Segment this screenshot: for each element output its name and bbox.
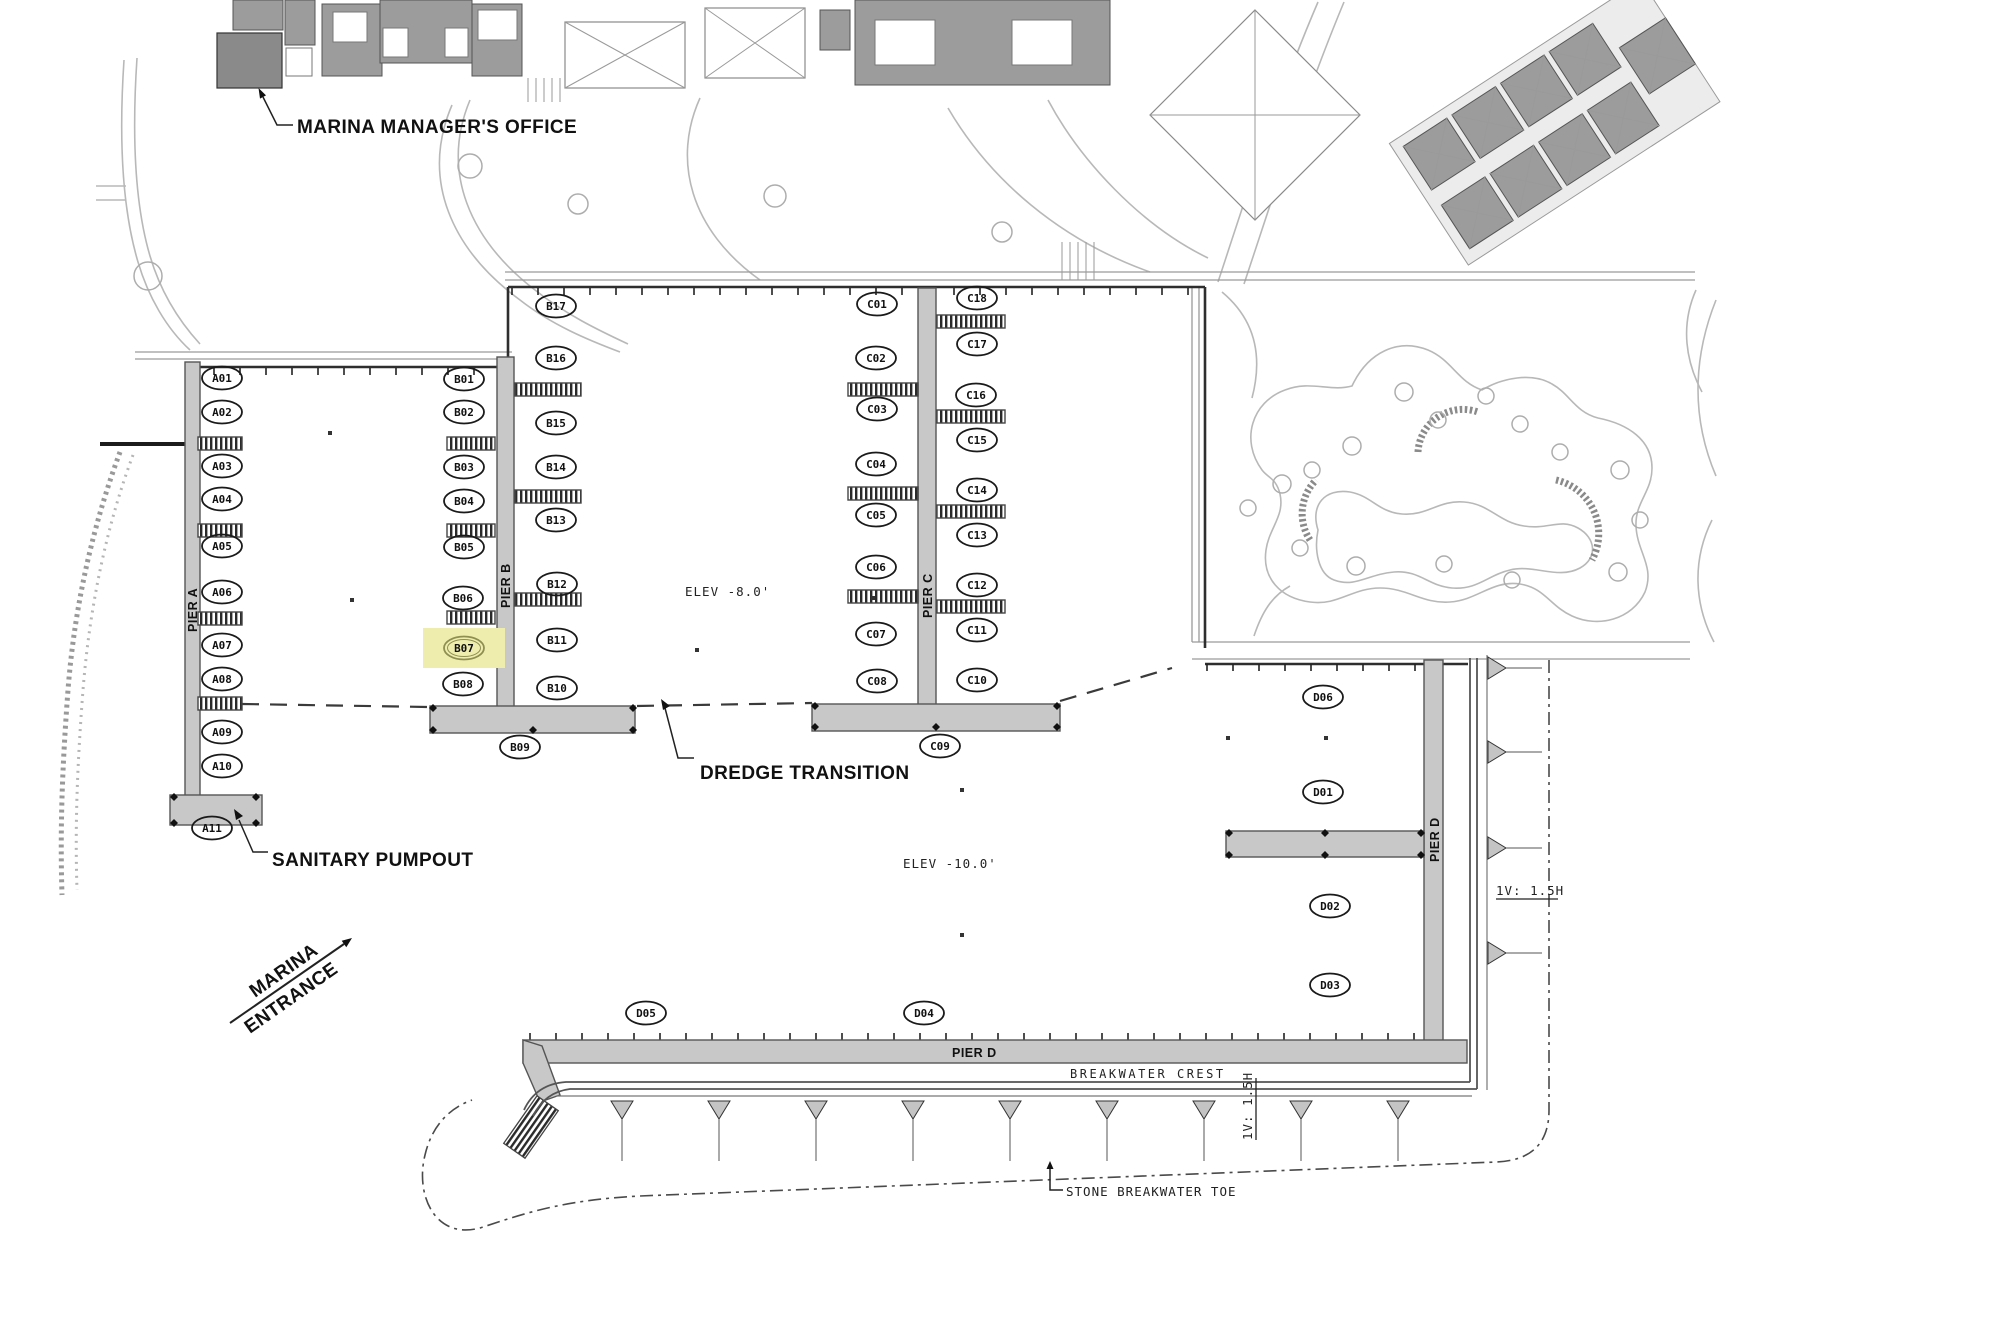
- svg-text:C10: C10: [967, 674, 987, 687]
- svg-text:B16: B16: [546, 352, 566, 365]
- svg-text:B02: B02: [454, 406, 474, 419]
- elev-lower-basin-label: ELEV -10.0': [903, 856, 997, 871]
- slip-D03[interactable]: D03: [1310, 974, 1350, 997]
- slip-B14[interactable]: B14: [536, 456, 576, 479]
- svg-text:D01: D01: [1313, 786, 1333, 799]
- stairs-icon: [1062, 242, 1094, 280]
- slip-C14[interactable]: C14: [957, 479, 997, 502]
- slip-B10[interactable]: B10: [537, 677, 577, 700]
- svg-text:C15: C15: [967, 434, 987, 447]
- arrowhead-icon: [1047, 1161, 1054, 1169]
- svg-text:A07: A07: [212, 639, 232, 652]
- slip-C06[interactable]: C06: [856, 556, 896, 579]
- slip-B08[interactable]: B08: [443, 673, 483, 696]
- slip-B11[interactable]: B11: [537, 629, 577, 652]
- slip-A10[interactable]: A10: [202, 755, 242, 778]
- stone-revetment: [61, 452, 133, 895]
- slip-C16[interactable]: C16: [956, 384, 996, 407]
- svg-text:C17: C17: [967, 338, 987, 351]
- marina-managers-office-building: [217, 33, 282, 88]
- dredge-transition-label: DREDGE TRANSITION: [700, 763, 909, 784]
- svg-text:1V: 1.5H: 1V: 1.5H: [1240, 1072, 1255, 1140]
- pool-landscape: [1240, 346, 1652, 622]
- resort-buildings-center: [705, 0, 1360, 280]
- slip-C18[interactable]: C18: [957, 287, 997, 310]
- pier-a-label: PIER A: [186, 588, 200, 632]
- svg-text:D03: D03: [1320, 979, 1340, 992]
- slip-B01[interactable]: B01: [444, 368, 484, 391]
- svg-text:A09: A09: [212, 726, 232, 739]
- slip-C07[interactable]: C07: [856, 623, 896, 646]
- slip-B04[interactable]: B04: [444, 490, 484, 513]
- svg-text:C02: C02: [866, 352, 886, 365]
- resort-buildings-northeast: [1389, 0, 1720, 265]
- slip-A04[interactable]: A04: [202, 488, 242, 511]
- slip-C01[interactable]: C01: [857, 293, 897, 316]
- svg-text:A02: A02: [212, 406, 232, 419]
- svg-text:C12: C12: [967, 579, 987, 592]
- marina-managers-office-label: MARINA MANAGER'S OFFICE: [297, 117, 577, 138]
- svg-text:B12: B12: [547, 578, 567, 591]
- slip-B17[interactable]: B17: [536, 295, 576, 318]
- pier-c-walkway: [918, 288, 936, 708]
- slip-D01[interactable]: D01: [1303, 781, 1343, 804]
- breakwater-crest-label: BREAKWATER CREST: [1070, 1067, 1226, 1081]
- slip-D05[interactable]: D05: [626, 1002, 666, 1025]
- slip-A03[interactable]: A03: [202, 455, 242, 478]
- svg-text:B14: B14: [546, 461, 566, 474]
- slip-C08[interactable]: C08: [857, 670, 897, 693]
- slip-D02[interactable]: D02: [1310, 895, 1350, 918]
- slip-C13[interactable]: C13: [957, 524, 997, 547]
- slip-C17[interactable]: C17: [957, 333, 997, 356]
- slip-C12[interactable]: C12: [957, 574, 997, 597]
- svg-text:B05: B05: [454, 541, 474, 554]
- svg-text:A10: A10: [212, 760, 232, 773]
- slip-B15[interactable]: B15: [536, 412, 576, 435]
- slip-B09[interactable]: B09: [500, 736, 540, 759]
- svg-text:D04: D04: [914, 1007, 934, 1020]
- slip-B03[interactable]: B03: [444, 456, 484, 479]
- svg-text:B07: B07: [454, 642, 474, 655]
- svg-text:C06: C06: [866, 561, 886, 574]
- svg-text:C09: C09: [930, 740, 950, 753]
- arrowhead-icon: [342, 938, 352, 947]
- svg-text:C14: C14: [967, 484, 987, 497]
- piers: [170, 288, 1467, 1158]
- slip-labels: A01A02A03A04A05A06A07A08A09A10A11B01B02B…: [192, 287, 1350, 1025]
- slip-A07[interactable]: A07: [202, 634, 242, 657]
- slip-B12[interactable]: B12: [537, 573, 577, 596]
- slip-B16[interactable]: B16: [536, 347, 576, 370]
- svg-text:1V: 1.5H: 1V: 1.5H: [1496, 883, 1564, 898]
- svg-text:C08: C08: [867, 675, 887, 688]
- slip-D06[interactable]: D06: [1303, 686, 1343, 709]
- slip-A08[interactable]: A08: [202, 668, 242, 691]
- svg-text:C04: C04: [866, 458, 886, 471]
- slip-C09[interactable]: C09: [920, 735, 960, 758]
- svg-text:C05: C05: [866, 509, 886, 522]
- stone-breakwater-toe-line: [422, 660, 1549, 1230]
- slip-D04[interactable]: D04: [904, 1002, 944, 1025]
- slip-A05[interactable]: A05: [202, 535, 242, 558]
- slip-A01[interactable]: A01: [202, 367, 242, 390]
- svg-text:A04: A04: [212, 493, 232, 506]
- site-plan-canvas: A01A02A03A04A05A06A07A08A09A10A11B01B02B…: [0, 0, 2000, 1333]
- dredge-transition-line: [242, 668, 1172, 707]
- slip-A06[interactable]: A06: [202, 581, 242, 604]
- svg-text:A01: A01: [212, 372, 232, 385]
- jetty-tip-block: [504, 1096, 559, 1158]
- breakwater-slope-markers: [611, 657, 1542, 1161]
- svg-text:B08: B08: [453, 678, 473, 691]
- svg-text:B03: B03: [454, 461, 474, 474]
- svg-text:A06: A06: [212, 586, 232, 599]
- slip-B02[interactable]: B02: [444, 401, 484, 424]
- slip-C04[interactable]: C04: [856, 453, 896, 476]
- svg-text:C03: C03: [867, 403, 887, 416]
- pier-a-t-head: [170, 795, 262, 825]
- svg-text:A05: A05: [212, 540, 232, 553]
- slip-B13[interactable]: B13: [536, 509, 576, 532]
- slope-ratio-bottom: 1V: 1.5H: [1240, 1072, 1256, 1140]
- stairs-icon: [528, 78, 560, 102]
- breakwater: [422, 655, 1549, 1230]
- svg-text:B06: B06: [453, 592, 473, 605]
- svg-text:B01: B01: [454, 373, 474, 386]
- slip-C15[interactable]: C15: [957, 429, 997, 452]
- svg-text:C18: C18: [967, 292, 987, 305]
- svg-text:D02: D02: [1320, 900, 1340, 913]
- slip-C10[interactable]: C10: [957, 669, 997, 692]
- pier-b-label: PIER B: [499, 563, 513, 608]
- svg-text:C16: C16: [966, 389, 986, 402]
- svg-text:D05: D05: [636, 1007, 656, 1020]
- svg-text:C13: C13: [967, 529, 987, 542]
- slip-C05[interactable]: C05: [856, 504, 896, 527]
- svg-text:C01: C01: [867, 298, 887, 311]
- svg-text:C07: C07: [866, 628, 886, 641]
- mooring-dots: [328, 431, 1328, 937]
- resort-buildings-west: [217, 0, 685, 102]
- svg-text:B11: B11: [547, 634, 567, 647]
- pier-a-walkway: [185, 362, 200, 799]
- svg-text:D06: D06: [1313, 691, 1333, 704]
- pier-d-label-vertical: PIER D: [1428, 817, 1442, 862]
- slip-B05[interactable]: B05: [444, 536, 484, 559]
- slip-B06[interactable]: B06: [443, 587, 483, 610]
- marina-site-plan: A01A02A03A04A05A06A07A08A09A10A11B01B02B…: [0, 0, 2000, 1333]
- pier-c-label: PIER C: [921, 573, 935, 618]
- stone-breakwater-toe-label: STONE BREAKWATER TOE: [1066, 1184, 1237, 1199]
- svg-text:B04: B04: [454, 495, 474, 508]
- slip-A09[interactable]: A09: [202, 721, 242, 744]
- svg-text:B10: B10: [547, 682, 567, 695]
- svg-text:A03: A03: [212, 460, 232, 473]
- svg-text:B09: B09: [510, 741, 530, 754]
- svg-text:C11: C11: [967, 624, 987, 637]
- svg-text:A11: A11: [202, 822, 222, 835]
- slip-A02[interactable]: A02: [202, 401, 242, 424]
- pier-d-label-horizontal: PIER D: [952, 1046, 997, 1060]
- slip-C11[interactable]: C11: [957, 619, 997, 642]
- sanitary-pumpout-label: SANITARY PUMPOUT: [272, 850, 473, 871]
- arrowhead-icon: [259, 88, 267, 99]
- slip-C02[interactable]: C02: [856, 347, 896, 370]
- elev-upper-basin-label: ELEV -8.0': [685, 584, 770, 599]
- svg-text:A08: A08: [212, 673, 232, 686]
- svg-text:B15: B15: [546, 417, 566, 430]
- svg-text:B13: B13: [546, 514, 566, 527]
- slip-C03[interactable]: C03: [857, 398, 897, 421]
- svg-text:B17: B17: [546, 300, 566, 313]
- slope-ratio-right: 1V: 1.5H: [1496, 883, 1564, 899]
- seawall: [100, 287, 1468, 664]
